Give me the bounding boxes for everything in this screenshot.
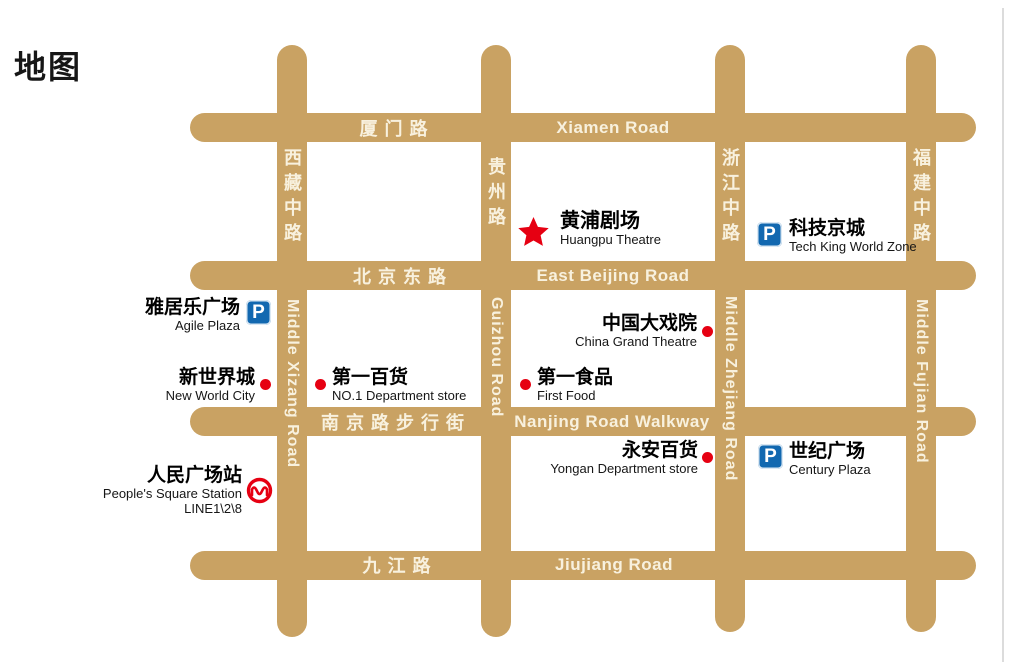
parking-icon: P — [246, 300, 271, 325]
road-label-xizang-en: Middle Xizang Road — [283, 299, 301, 468]
parking-icon: P — [758, 444, 783, 469]
poi-name: 中国大戏院 — [575, 313, 697, 334]
road-label-jiujiang-zh: 九江路 — [363, 552, 438, 578]
road-label-guizhou-en: Guizhou Road — [487, 297, 505, 417]
poi-dot — [702, 452, 713, 463]
road-label-fujian-en: Middle Fujian Road — [912, 299, 930, 464]
poi-line-label: LINE1\2\8 — [103, 501, 242, 516]
poi-yongan-department-store: 永安百货 Yongan Department store — [550, 440, 698, 476]
star-icon — [515, 216, 552, 252]
poi-subtitle: Century Plaza — [789, 462, 871, 477]
poi-subtitle: China Grand Theatre — [575, 334, 697, 349]
poi-name: 永安百货 — [550, 440, 698, 461]
poi-name: 科技京城 — [789, 218, 917, 239]
poi-tech-king-world-zone: 科技京城 Tech King World Zone — [789, 218, 917, 254]
poi-subtitle: Agile Plaza — [145, 318, 240, 333]
poi-subtitle: Huangpu Theatre — [560, 232, 661, 247]
road-label-xiamen-zh: 厦门路 — [360, 115, 435, 141]
page-title: 地图 — [14, 42, 82, 88]
poi-subtitle: First Food — [537, 388, 613, 403]
poi-name: 黄浦剧场 — [560, 211, 661, 232]
poi-name: 世纪广场 — [789, 441, 871, 462]
poi-century-plaza: 世纪广场 Century Plaza — [789, 441, 871, 477]
road-label-zhejiang-zh: 浙江中路 — [717, 148, 743, 248]
poi-subtitle: People's Square Station — [103, 486, 242, 501]
poi-subtitle: Yongan Department store — [550, 461, 698, 476]
poi-name: 第一食品 — [537, 367, 613, 388]
road-label-jiujiang-en: Jiujiang Road — [555, 555, 673, 575]
poi-peoples-square-station: 人民广场站 People's Square Station LINE1\2\8 — [103, 465, 242, 516]
poi-first-food: 第一食品 First Food — [537, 367, 613, 403]
poi-dot — [520, 379, 531, 390]
road-label-xiamen-en: Xiamen Road — [556, 118, 669, 138]
poi-subtitle: New World City — [166, 388, 255, 403]
poi-name: 人民广场站 — [103, 465, 242, 486]
poi-new-world-city: 新世界城 New World City — [166, 367, 255, 403]
road-label-east-beijing-en: East Beijing Road — [536, 266, 689, 286]
metro-icon — [246, 477, 273, 504]
poi-dot — [702, 326, 713, 337]
poi-name: 第一百货 — [332, 367, 466, 388]
map-canvas: 地图 厦门路 Xiamen Road 北京东路 East Beijing Roa… — [0, 0, 1009, 662]
poi-name: 雅居乐广场 — [145, 297, 240, 318]
poi-subtitle: NO.1 Department store — [332, 388, 466, 403]
poi-no1-department-store: 第一百货 NO.1 Department store — [332, 367, 466, 403]
poi-dot — [260, 379, 271, 390]
poi-agile-plaza: 雅居乐广场 Agile Plaza — [145, 297, 240, 333]
poi-subtitle: Tech King World Zone — [789, 239, 917, 254]
poi-dot — [315, 379, 326, 390]
road-label-east-beijing-zh: 北京东路 — [353, 263, 453, 289]
poi-name: 新世界城 — [166, 367, 255, 388]
page-edge-divider — [1002, 8, 1004, 662]
road-label-zhejiang-en: Middle Zhejiang Road — [721, 296, 739, 481]
poi-china-grand-theatre: 中国大戏院 China Grand Theatre — [575, 313, 697, 349]
parking-icon: P — [757, 222, 782, 247]
poi-huangpu-theatre: 黄浦剧场 Huangpu Theatre — [560, 211, 661, 247]
road-label-guizhou-zh: 贵州路 — [483, 157, 509, 232]
road-label-xizang-zh: 西藏中路 — [279, 148, 305, 248]
road-label-nanjing-en: Nanjing Road Walkway — [514, 412, 709, 432]
road-label-nanjing-zh: 南京路步行街 — [321, 409, 471, 435]
